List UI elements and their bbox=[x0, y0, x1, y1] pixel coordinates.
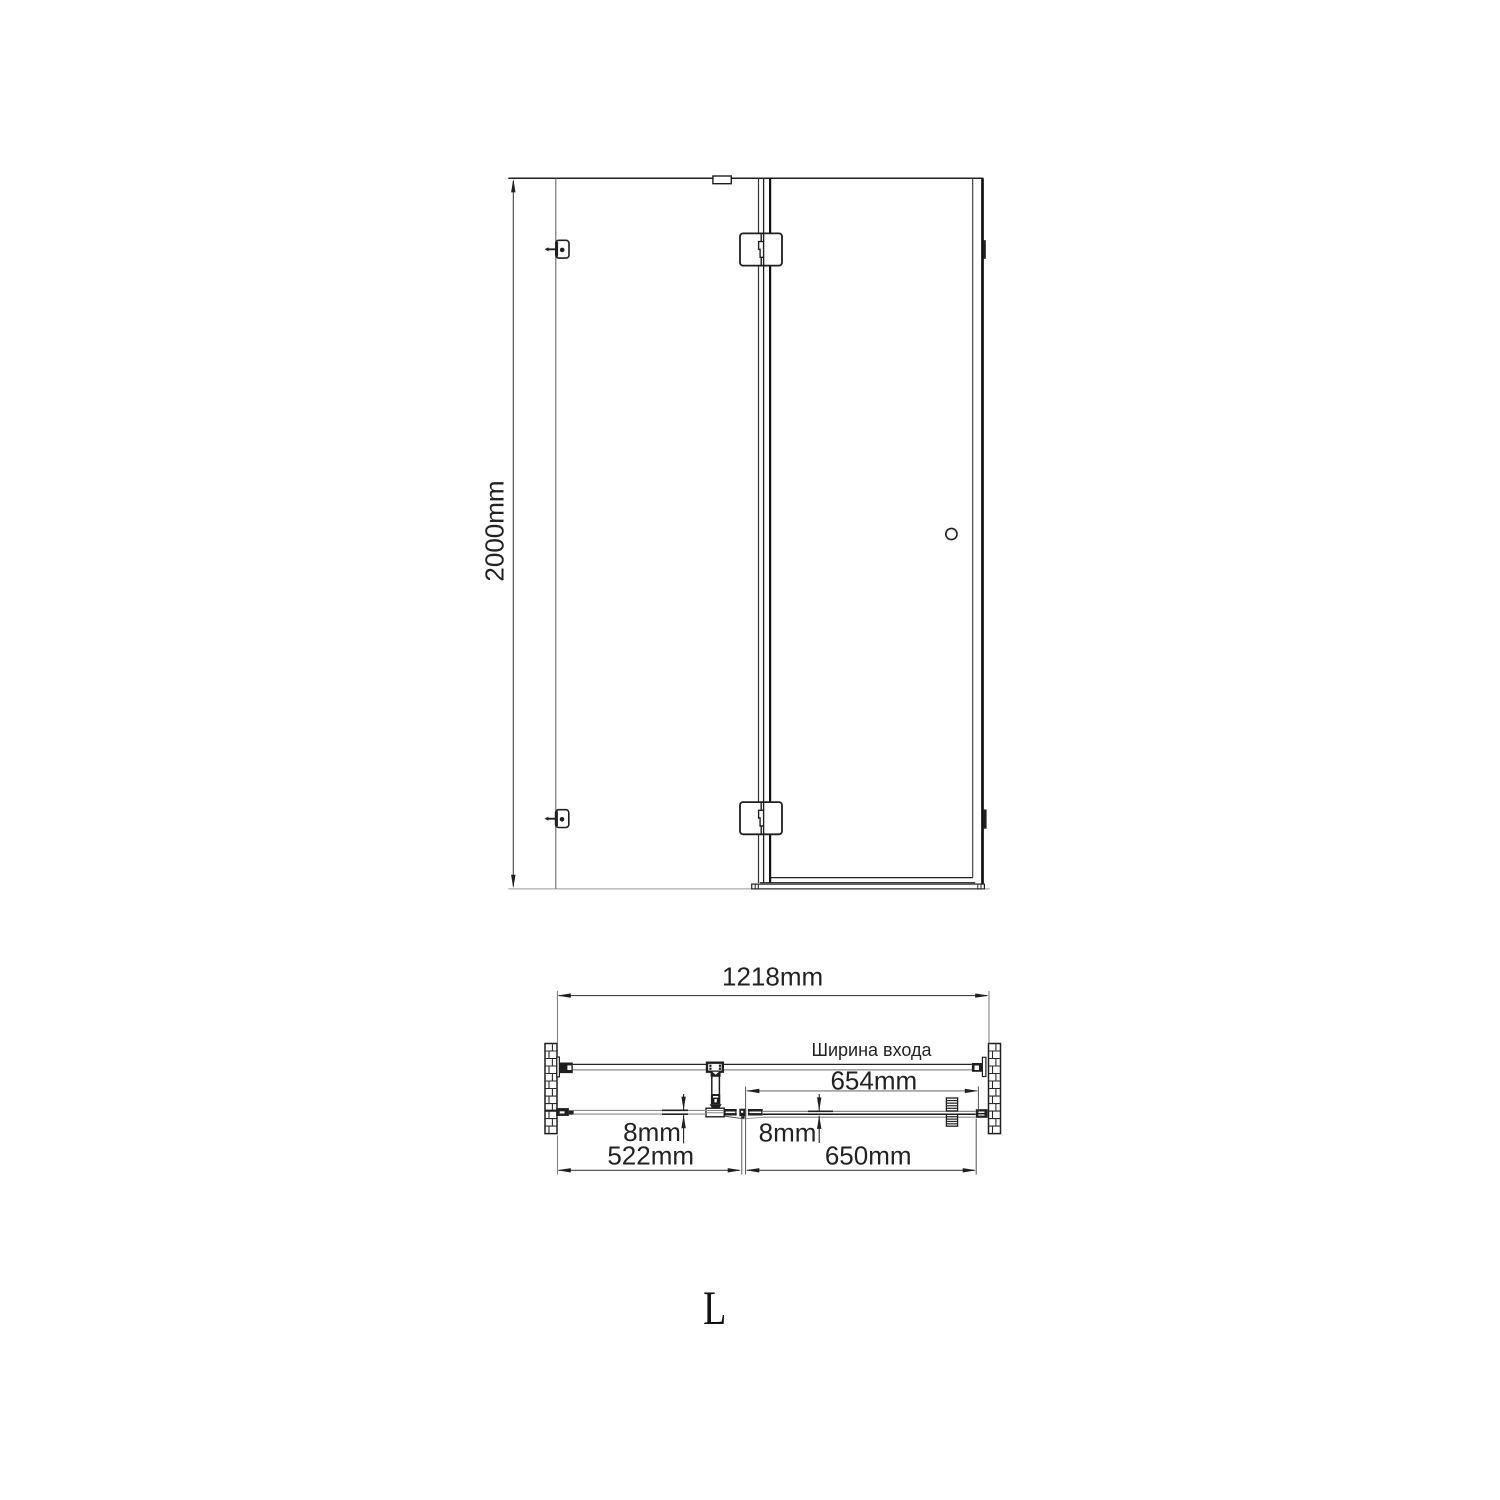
svg-text:L: L bbox=[703, 1282, 726, 1335]
svg-text:522mm: 522mm bbox=[607, 1140, 694, 1170]
svg-text:2000mm: 2000mm bbox=[480, 480, 510, 581]
svg-text:654mm: 654mm bbox=[830, 1066, 917, 1096]
svg-text:650mm: 650mm bbox=[825, 1140, 912, 1170]
svg-text:Ширина входа: Ширина входа bbox=[811, 1040, 932, 1060]
svg-text:8mm: 8mm bbox=[759, 1118, 817, 1148]
svg-text:1218mm: 1218mm bbox=[722, 962, 823, 992]
